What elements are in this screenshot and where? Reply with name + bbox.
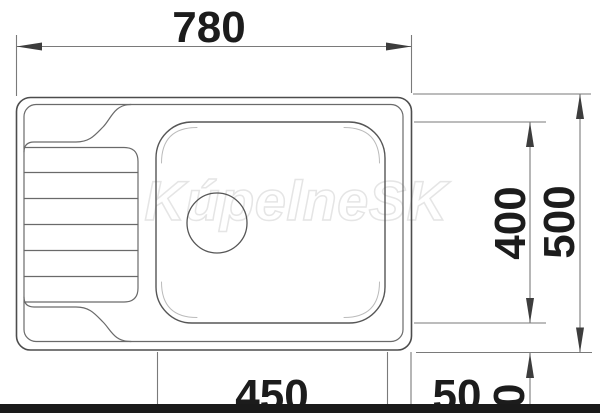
arrow-down-icon (576, 328, 584, 353)
dim-label-500: 500 (535, 185, 584, 258)
drainboard-top-curve (24, 105, 131, 153)
arrow-up-icon (526, 122, 534, 147)
sink-dimension-drawing: KúpelneSK (0, 0, 600, 413)
arrow-up-icon (526, 353, 534, 378)
watermark-text: KúpelneSK (144, 169, 450, 232)
drawing-canvas: KúpelneSK (0, 0, 600, 413)
dim-label-780: 780 (172, 3, 245, 52)
arrow-up-icon (576, 94, 584, 119)
arrow-left-icon (17, 43, 43, 51)
drainboard-bottom-curve (24, 297, 131, 342)
dim-label-400: 400 (486, 186, 535, 259)
arrow-down-icon (526, 298, 534, 323)
arrow-right-icon (386, 43, 412, 51)
bottom-crop-bar (0, 404, 600, 413)
